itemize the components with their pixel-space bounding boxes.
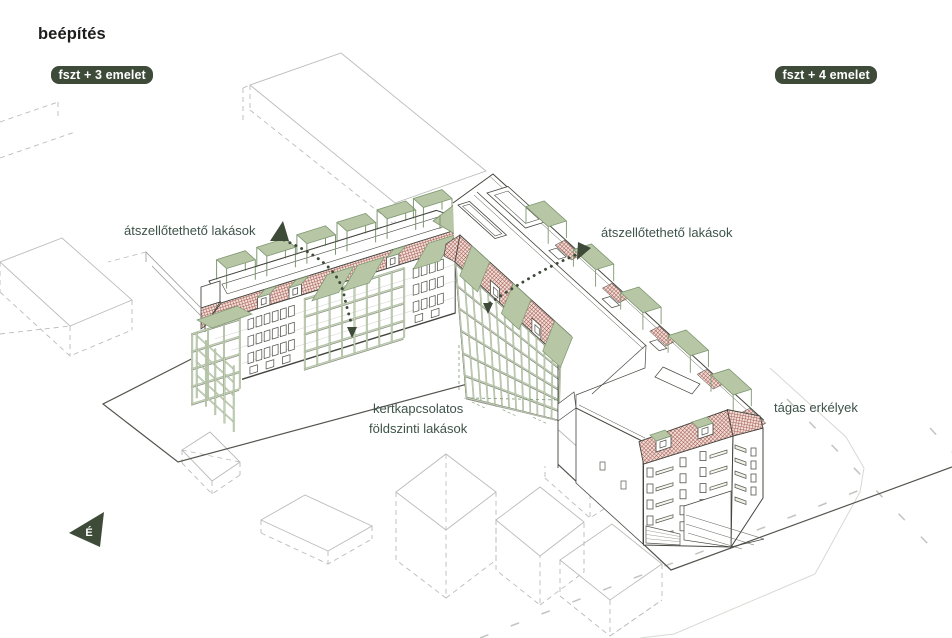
svg-text:É: É (85, 526, 92, 539)
